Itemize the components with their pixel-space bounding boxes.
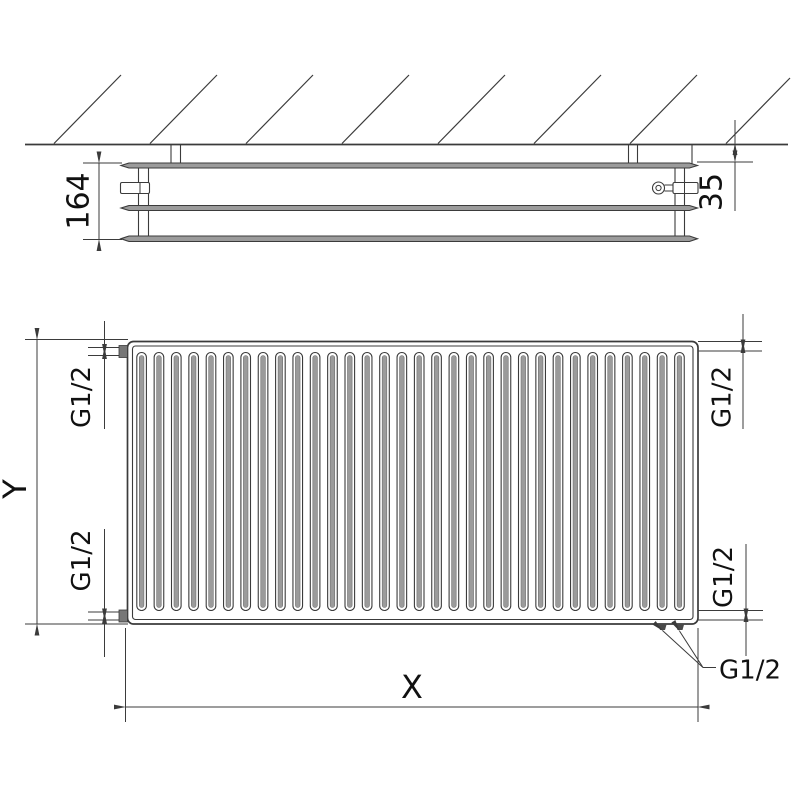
fin-core <box>382 356 387 608</box>
wall-brackets <box>171 145 692 164</box>
fin-core <box>642 356 647 608</box>
hatch-line <box>726 78 790 144</box>
fin-core <box>313 356 318 608</box>
width-dimension: X <box>126 628 699 722</box>
hatch-line <box>150 75 217 144</box>
fin-core <box>417 356 422 608</box>
fin-core <box>400 356 405 608</box>
panel-connecting-pipes <box>139 167 685 237</box>
fin-core <box>348 356 353 608</box>
fin-core <box>226 356 231 608</box>
wall-hatching <box>54 75 790 144</box>
fin-core <box>590 356 595 608</box>
fin-core <box>139 356 144 608</box>
stub-cap <box>119 610 128 622</box>
fin-core <box>243 356 248 608</box>
hatch-line <box>630 75 697 144</box>
fin-core <box>677 356 682 608</box>
fin-core <box>434 356 439 608</box>
connection-tab <box>659 625 667 630</box>
thread-dim-top-left: G1/2 <box>67 321 105 429</box>
thread-label-bottom-right: G1/2 <box>709 546 739 608</box>
drawing-canvas: 164 35 <box>0 0 800 800</box>
hatch-line <box>54 75 121 144</box>
front-view: G1/2 G1/2 G1/2 G1/2 G1/2 <box>0 314 781 722</box>
left-connection-stub <box>121 183 150 194</box>
hatch-line <box>246 75 313 144</box>
vent-knob-inner <box>656 185 661 190</box>
wall-distance-dimension: 35 <box>695 120 754 211</box>
thread-label-bottom-callout: G1/2 <box>719 656 781 686</box>
fin-core <box>573 356 578 608</box>
fin-core <box>365 356 370 608</box>
depth-dimension-label: 164 <box>62 172 97 229</box>
radiator-technical-drawing: 164 35 <box>0 0 800 800</box>
fin-core <box>278 356 283 608</box>
fin-core <box>486 356 491 608</box>
thread-label-top-right: G1/2 <box>708 366 738 428</box>
panel-strip-top <box>121 163 698 168</box>
fin-core <box>625 356 630 608</box>
fin-core <box>174 356 179 608</box>
thread-dim-top-right: G1/2 <box>708 314 744 429</box>
bottom-connection-callout: G1/2 <box>659 625 782 686</box>
fin-core <box>556 356 561 608</box>
air-vent <box>653 182 699 194</box>
hatch-line <box>534 75 601 144</box>
connection-tab <box>676 625 684 630</box>
thread-label-top-left: G1/2 <box>67 366 97 428</box>
panel-strip-bottom <box>121 236 698 242</box>
wall-distance-label: 35 <box>695 173 730 211</box>
fin-core <box>660 356 665 608</box>
fin-core <box>295 356 300 608</box>
fin-core <box>469 356 474 608</box>
height-dimension-label: Y <box>0 479 34 500</box>
height-dimension: Y <box>0 340 128 625</box>
width-dimension-label: X <box>401 668 423 706</box>
thread-dim-bottom-left: G1/2 <box>67 529 105 657</box>
fin-core <box>209 356 214 608</box>
thread-label-bottom-left: G1/2 <box>67 530 97 592</box>
side-section-view: 164 35 <box>25 75 790 242</box>
hatch-line <box>342 75 409 144</box>
fin-core <box>261 356 266 608</box>
fin-core <box>608 356 613 608</box>
thread-dim-bottom-right: G1/2 <box>709 544 746 656</box>
radiator-panels <box>121 163 698 242</box>
fin-core <box>521 356 526 608</box>
panel-strip-middle <box>121 206 698 211</box>
fin-core <box>538 356 543 608</box>
fin-core <box>504 356 509 608</box>
fin-core <box>330 356 335 608</box>
fin-core <box>452 356 457 608</box>
hatch-line <box>438 75 505 144</box>
depth-dimension: 164 <box>62 163 123 240</box>
fin-core <box>157 356 162 608</box>
stub-cap <box>119 346 128 358</box>
fin-core <box>191 356 196 608</box>
